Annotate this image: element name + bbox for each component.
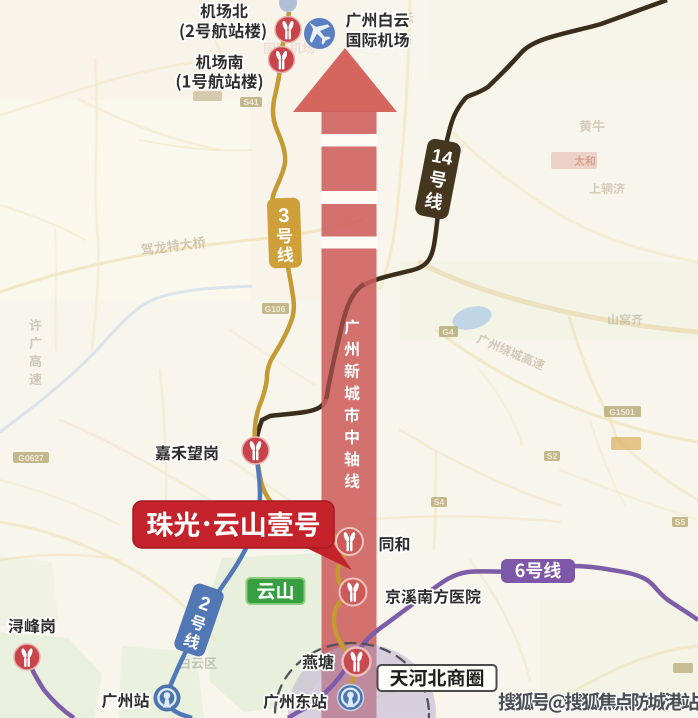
svg-text:G4: G4 — [442, 327, 454, 337]
svg-text:S4: S4 — [434, 497, 445, 507]
svg-text:3: 3 — [278, 205, 290, 227]
svg-text:14: 14 — [430, 146, 455, 171]
svg-text:G0627: G0627 — [18, 453, 44, 463]
svg-text:S5: S5 — [675, 517, 686, 527]
svg-text:S2: S2 — [547, 451, 558, 461]
svg-text:G106: G106 — [265, 304, 286, 314]
svg-text:G1501: G1501 — [609, 407, 635, 417]
svg-text:S41: S41 — [243, 97, 258, 107]
